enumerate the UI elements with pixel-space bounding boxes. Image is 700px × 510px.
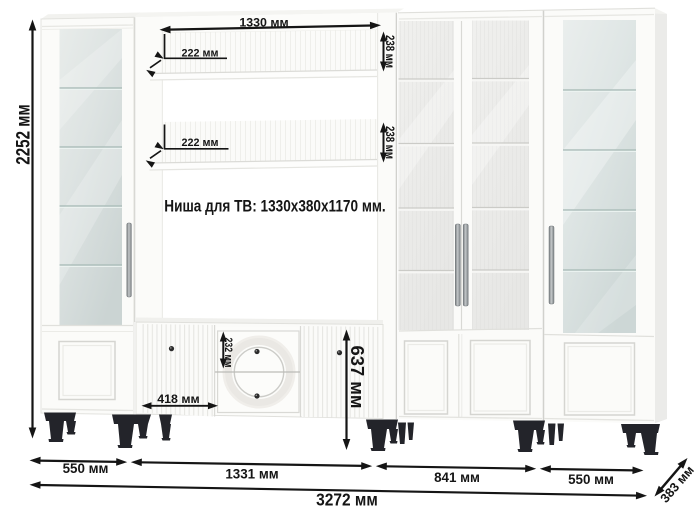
svg-text:232 мм: 232 мм bbox=[222, 338, 235, 368]
svg-text:1331 мм: 1331 мм bbox=[225, 467, 278, 482]
svg-text:637 мм: 637 мм bbox=[347, 346, 368, 409]
svg-text:550 мм: 550 мм bbox=[568, 472, 614, 487]
svg-text:418 мм: 418 мм bbox=[157, 392, 199, 406]
svg-text:841 мм: 841 мм bbox=[434, 470, 480, 485]
svg-text:238 мм: 238 мм bbox=[383, 35, 396, 68]
svg-text:550 мм: 550 мм bbox=[63, 461, 109, 476]
svg-text:238 мм: 238 мм bbox=[383, 126, 396, 159]
svg-text:3272 мм: 3272 мм bbox=[316, 491, 378, 510]
svg-text:222 мм: 222 мм bbox=[182, 137, 219, 149]
svg-text:1330 мм: 1330 мм bbox=[239, 15, 288, 29]
svg-text:2252 мм: 2252 мм bbox=[12, 104, 34, 164]
svg-text:222 мм: 222 мм bbox=[182, 48, 219, 60]
svg-text:Ниша для ТВ: 1330х380х1170 мм.: Ниша для ТВ: 1330х380х1170 мм. bbox=[164, 197, 385, 215]
